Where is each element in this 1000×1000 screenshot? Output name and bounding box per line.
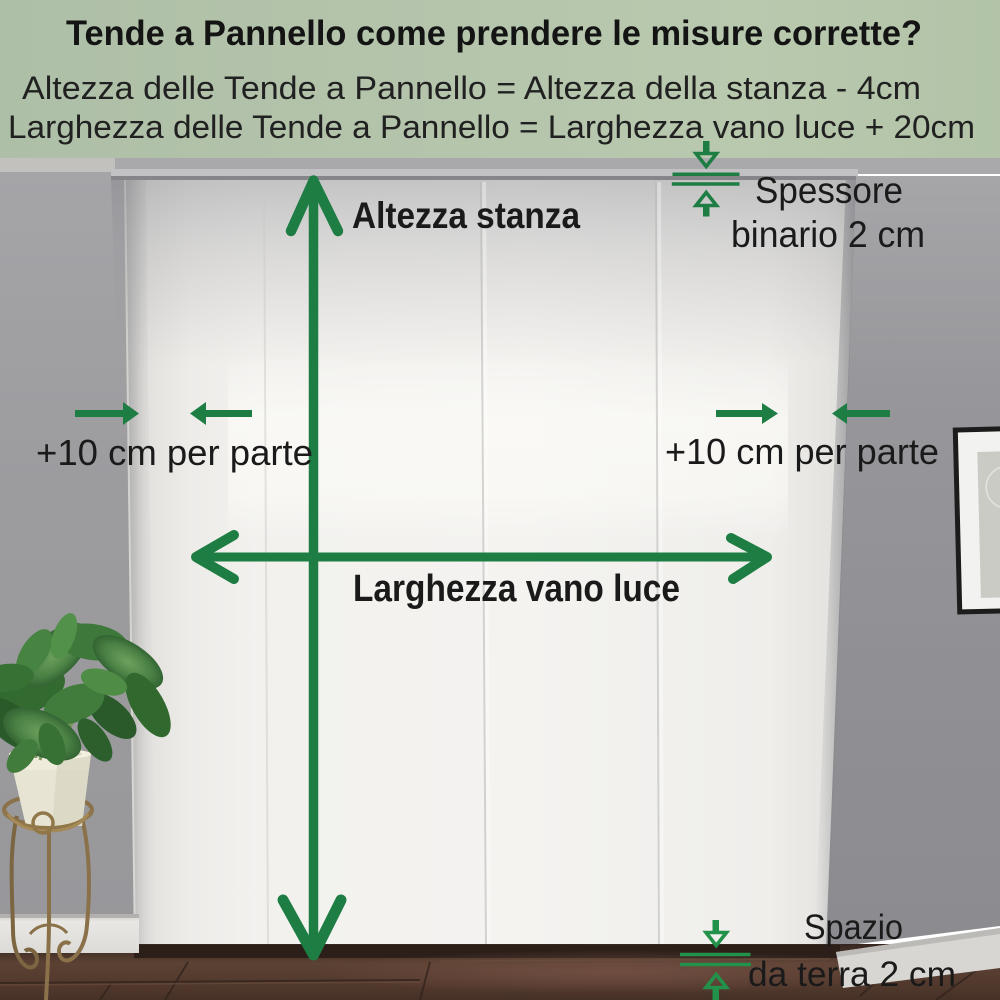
svg-text:da terra 2 cm: da terra 2 cm xyxy=(748,955,956,994)
svg-text:Larghezza delle Tende a Pannel: Larghezza delle Tende a Pannello = Largh… xyxy=(8,109,975,145)
svg-text:+10 cm per parte: +10 cm per parte xyxy=(36,432,313,473)
svg-text:+10 cm per parte: +10 cm per parte xyxy=(665,431,939,472)
svg-text:Altezza delle Tende a Pannello: Altezza delle Tende a Pannello = Altezza… xyxy=(22,70,921,106)
svg-text:Tende a Pannello come prendere: Tende a Pannello come prendere le misure… xyxy=(66,14,922,53)
svg-text:Spazio: Spazio xyxy=(804,908,903,947)
svg-text:Altezza stanza: Altezza stanza xyxy=(352,195,580,236)
svg-text:Larghezza vano luce: Larghezza vano luce xyxy=(353,568,680,610)
svg-text:binario 2 cm: binario 2 cm xyxy=(731,214,925,255)
svg-text:Spessore: Spessore xyxy=(755,170,903,211)
